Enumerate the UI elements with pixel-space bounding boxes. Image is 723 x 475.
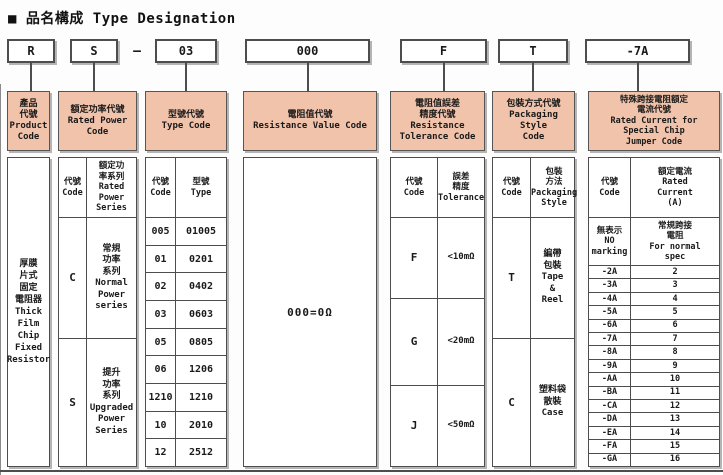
table-row: 061206 <box>146 356 226 384</box>
code-box-product: R <box>7 39 55 63</box>
table-row: -5A5 <box>589 306 719 319</box>
header-packaging: 包裝方式代號 Packaging Style Code <box>492 91 575 151</box>
table-row: -FA15 <box>589 440 719 453</box>
table-row: 102010 <box>146 412 226 440</box>
table-cell: -FA <box>589 440 631 452</box>
table-row: -BA11 <box>589 387 719 400</box>
table-cell: -3A <box>589 279 631 291</box>
table-cell: -8A <box>589 346 631 358</box>
table-row: 020402 <box>146 273 226 301</box>
table-cell: 提升 功率 系列 Upgraded Power Series <box>87 339 136 466</box>
product-description: 厚膜 片式 固定 電阻器 Thick Film Chip Fixed Resis… <box>8 158 49 466</box>
table-cell: 06 <box>146 356 176 383</box>
page-border-left <box>0 84 1 475</box>
connector-line <box>443 63 445 91</box>
column-header-code: 代號 Code <box>146 158 176 217</box>
header-resistance-value: 電阻值代號 Resistance Value Code <box>243 91 377 151</box>
table-row: J <50mΩ <box>391 386 484 466</box>
column-header-series: 額定功 率系列 Rated Power Series <box>87 158 136 217</box>
table-row: 050805 <box>146 329 226 357</box>
table-cell: F <box>391 218 438 298</box>
table-subheader: 代號 Code 額定功 率系列 Rated Power Series <box>59 158 136 218</box>
table-cell: 005 <box>146 218 176 245</box>
column-header-code: 代號 Code <box>59 158 87 217</box>
table-row: -6A6 <box>589 320 719 333</box>
table-row: C 常規 功率 系列 Normal Power series <box>59 218 136 339</box>
connector-line <box>532 63 534 91</box>
table-row: -7A7 <box>589 333 719 346</box>
table-cell: T <box>493 218 531 338</box>
table-cell: 1210 <box>146 384 176 411</box>
dash-separator: – <box>124 39 150 63</box>
table-subheader: 代號 Code 誤差 精度 Tolerance <box>391 158 484 218</box>
table-cell: 6 <box>631 320 719 332</box>
table-cell: -6A <box>589 320 631 332</box>
table-row: -EA14 <box>589 427 719 440</box>
table-cell: 編帶 包裝 Tape & Reel <box>531 218 574 338</box>
column-header-code: 代號 Code <box>493 158 531 217</box>
table-cell: 8 <box>631 346 719 358</box>
column-header-code: 代號 Code <box>391 158 438 217</box>
table-subheader: 代號 Code 包裝 方法 Packaging Style <box>493 158 574 218</box>
table-row: 030603 <box>146 301 226 329</box>
code-box-tolerance: F <box>400 39 487 63</box>
table-cell: S <box>59 339 87 466</box>
resistance-value-note: 000=0Ω <box>244 158 376 466</box>
table-row: -9A9 <box>589 360 719 373</box>
table-row: S 提升 功率 系列 Upgraded Power Series <box>59 339 136 466</box>
connector-line <box>307 63 309 91</box>
column-header-style: 包裝 方法 Packaging Style <box>531 158 577 217</box>
code-box-power: S <box>70 39 118 63</box>
table-row: -GA16 <box>589 454 719 466</box>
table-row: F <10mΩ <box>391 218 484 299</box>
table-subheader: 代號 Code 型號 Type <box>146 158 226 218</box>
table-cell: -CA <box>589 400 631 412</box>
table-row-no-marking: 無表示 NO marking 常規跨接 電阻 For normal spec <box>589 218 719 266</box>
jumper-current-table: 代號 Code 額定電流 Rated Current (A) 無表示 NO ma… <box>588 157 720 467</box>
column-header-tolerance: 誤差 精度 Tolerance <box>438 158 484 217</box>
table-row: T 編帶 包裝 Tape & Reel <box>493 218 574 339</box>
connector-line <box>637 63 639 91</box>
table-cell: 10 <box>146 412 176 439</box>
header-product-code: 產品 代號 Product Code <box>7 91 50 151</box>
table-row: -DA13 <box>589 413 719 426</box>
table-cell: 01 <box>146 246 176 273</box>
table-cell: 12 <box>631 400 719 412</box>
table-cell: 常規跨接 電阻 For normal spec <box>631 218 719 265</box>
page-title: ■ 品名構成 Type Designation <box>8 8 236 28</box>
table-cell: 2010 <box>176 412 226 439</box>
table-cell: C <box>493 339 531 466</box>
table-cell: 0402 <box>176 273 226 300</box>
header-jumper-current: 特殊跨接電阻額定 電流代號 Rated Current for Special … <box>588 91 720 151</box>
table-cell: 2 <box>631 266 719 278</box>
code-box-value: 000 <box>245 39 370 63</box>
table-cell: 11 <box>631 387 719 399</box>
table-cell: 02 <box>146 273 176 300</box>
table-cell: -DA <box>589 413 631 425</box>
table-cell: -5A <box>589 306 631 318</box>
table-cell: 9 <box>631 360 719 372</box>
table-cell: 14 <box>631 427 719 439</box>
table-cell: -AA <box>589 373 631 385</box>
table-cell: 0201 <box>176 246 226 273</box>
table-cell: <10mΩ <box>438 218 484 298</box>
type-code-rows: 0050100501020102040203060305080506120612… <box>146 218 226 466</box>
table-cell: C <box>59 218 87 338</box>
table-cell: <50mΩ <box>438 386 484 466</box>
table-cell: -7A <box>589 333 631 345</box>
connector-line <box>185 63 187 91</box>
rated-power-table: 代號 Code 額定功 率系列 Rated Power Series C 常規 … <box>58 157 137 467</box>
product-code-table: 厚膜 片式 固定 電阻器 Thick Film Chip Fixed Resis… <box>7 157 50 467</box>
table-row: 010201 <box>146 246 226 274</box>
table-cell: 01005 <box>176 218 226 245</box>
table-cell: 4 <box>631 293 719 305</box>
table-cell: -EA <box>589 427 631 439</box>
table-subheader: 代號 Code 額定電流 Rated Current (A) <box>589 158 719 218</box>
table-cell: 5 <box>631 306 719 318</box>
tolerance-table: 代號 Code 誤差 精度 Tolerance F <10mΩ G <20mΩ … <box>390 157 485 467</box>
resistance-value-table: 000=0Ω <box>243 157 377 467</box>
code-box-packaging: T <box>498 39 568 63</box>
type-designation-page: ■ 品名構成 Type Designation R S – 03 000 F T… <box>0 0 723 475</box>
table-cell: 13 <box>631 413 719 425</box>
table-row: G <20mΩ <box>391 299 484 386</box>
table-row: -3A3 <box>589 279 719 292</box>
table-cell: -9A <box>589 360 631 372</box>
type-code-table: 代號 Code 型號 Type 005010050102010204020306… <box>145 157 227 467</box>
table-cell: <20mΩ <box>438 299 484 385</box>
table-cell: 1206 <box>176 356 226 383</box>
table-cell: 16 <box>631 454 719 466</box>
code-box-jumper: -7A <box>585 39 690 63</box>
table-row: -2A2 <box>589 266 719 279</box>
header-type-code: 型號代號 Type Code <box>145 91 227 151</box>
table-cell: 10 <box>631 373 719 385</box>
table-cell: -GA <box>589 454 631 466</box>
column-header-current: 額定電流 Rated Current (A) <box>631 158 719 217</box>
table-cell: 12 <box>146 439 176 466</box>
column-header-code: 代號 Code <box>589 158 631 217</box>
table-cell: 2512 <box>176 439 226 466</box>
table-row: C 塑料袋 散裝 Case <box>493 339 574 466</box>
table-cell: 1210 <box>176 384 226 411</box>
table-row: 122512 <box>146 439 226 466</box>
jumper-current-rows: -2A2-3A3-4A4-5A5-6A6-7A7-8A8-9A9-AA10-BA… <box>589 266 719 466</box>
table-cell: -2A <box>589 266 631 278</box>
table-cell: 3 <box>631 279 719 291</box>
table-cell: -4A <box>589 293 631 305</box>
table-cell: 常規 功率 系列 Normal Power series <box>87 218 136 338</box>
column-header-type: 型號 Type <box>176 158 226 217</box>
page-border-bottom <box>0 470 723 472</box>
code-box-type: 03 <box>155 39 217 63</box>
table-cell: 05 <box>146 329 176 356</box>
table-cell: 無表示 NO marking <box>589 218 631 265</box>
table-cell: 03 <box>146 301 176 328</box>
table-cell: -BA <box>589 387 631 399</box>
table-cell: 塑料袋 散裝 Case <box>531 339 574 466</box>
table-row: -CA12 <box>589 400 719 413</box>
table-row: 12101210 <box>146 384 226 412</box>
header-tolerance: 電阻值誤差 精度代號 Resistance Tolerance Code <box>390 91 485 151</box>
table-cell: 0805 <box>176 329 226 356</box>
table-cell: J <box>391 386 438 466</box>
packaging-table: 代號 Code 包裝 方法 Packaging Style T 編帶 包裝 Ta… <box>492 157 575 467</box>
table-row: -4A4 <box>589 293 719 306</box>
connector-line <box>93 63 95 91</box>
table-row: -AA10 <box>589 373 719 386</box>
connector-line <box>30 63 32 91</box>
table-row: -8A8 <box>589 346 719 359</box>
table-cell: 7 <box>631 333 719 345</box>
header-rated-power: 額定功率代號 Rated Power Code <box>58 91 137 151</box>
table-row: 00501005 <box>146 218 226 246</box>
table-cell: G <box>391 299 438 385</box>
table-cell: 0603 <box>176 301 226 328</box>
table-cell: 15 <box>631 440 719 452</box>
